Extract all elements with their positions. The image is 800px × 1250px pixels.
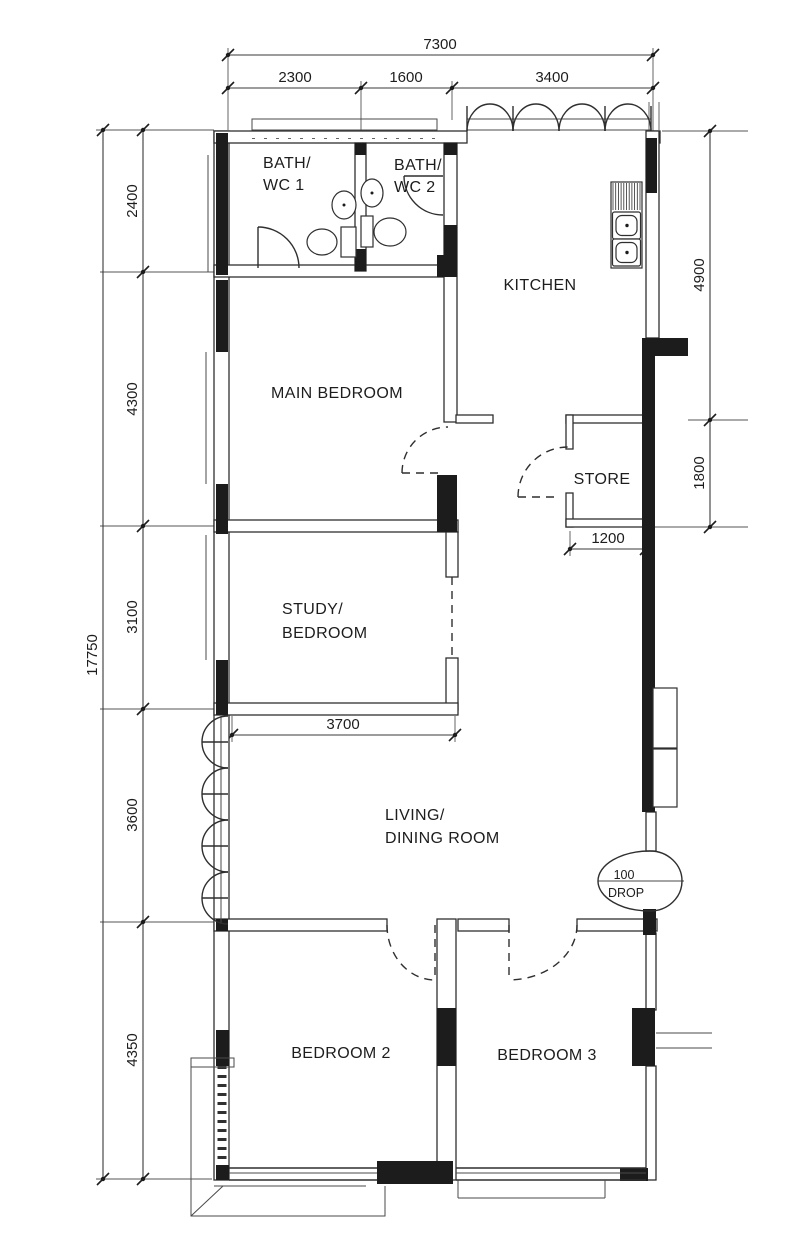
service-shafts: [653, 688, 677, 807]
store-door-dashed: [518, 447, 568, 497]
dim-right-seg1: 4900: [691, 258, 708, 291]
wall-right-lower-3: [646, 1066, 656, 1180]
wall-kitchen-stub: [456, 415, 493, 423]
wall-right-lower-2: [646, 933, 656, 1010]
room-label-store: STORE: [574, 471, 631, 488]
room-label-kitchen: KITCHEN: [503, 277, 576, 294]
bath1-door: [258, 227, 299, 268]
floor-plan-canvas: 7300 2300 1600 3400 17750 2400 4300 3100…: [0, 0, 800, 1250]
room-label-main-bedroom: MAIN BEDROOM: [271, 385, 403, 402]
room-label-study-line1: STUDY/: [282, 601, 343, 618]
dim-left-seg2: 4300: [124, 382, 141, 415]
wall-bath2-kitchen-divider: [444, 143, 457, 422]
wall-bath-bottom: [214, 265, 456, 277]
room-label-bath1-line1: BATH/: [263, 155, 311, 172]
wall-right-lower-1: [646, 812, 656, 851]
dim-top-seg1: 2300: [278, 69, 311, 86]
bath1-fixtures: [307, 191, 356, 257]
dim-store-width: 1200: [591, 530, 624, 547]
room-label-bath2-line2: WC 2: [394, 179, 436, 196]
wall-study-right-upper: [446, 532, 458, 577]
room-label-bath2-line1: BATH/: [394, 157, 442, 174]
annotation-drop-line2: DROP: [608, 886, 644, 900]
dim-left-seg4: 3600: [124, 798, 141, 831]
kitchen-sink-unit: [611, 182, 642, 268]
dim-left-total: 17750: [84, 634, 101, 676]
room-label-bedroom2: BEDROOM 2: [291, 1045, 391, 1062]
windows: [206, 119, 651, 1198]
drop-door: [598, 851, 684, 911]
bedroom2-door-dashed: [387, 925, 435, 980]
room-label-study-line2: BEDROOM: [282, 625, 367, 642]
toilet-bowl: [307, 229, 337, 255]
floor-plan-page: 7300 2300 1600 3400 17750 2400 4300 3100…: [0, 0, 800, 1250]
annotation-drop-line1: 100: [614, 868, 635, 882]
dim-right-seg2: 1800: [691, 456, 708, 489]
wall-store-left-upper: [566, 415, 573, 449]
dim-top-total: 7300: [423, 36, 456, 53]
wall-mainbedroom-bottom: [214, 520, 458, 532]
dim-left-seg1: 2400: [124, 184, 141, 217]
room-label-bath1-line2: WC 1: [263, 177, 305, 194]
wall-store-bottom: [566, 519, 646, 527]
entrance-bifold-doors: [467, 104, 651, 131]
room-label-living-line1: LIVING/: [385, 807, 445, 824]
dim-top-seg2: 1600: [389, 69, 422, 86]
wall-living-bottom-b: [458, 919, 509, 931]
corridor-stub-lines: [656, 1033, 712, 1048]
wall-top: [214, 131, 467, 143]
toilet-tank: [361, 216, 373, 247]
window-top-frame: [252, 119, 437, 130]
dim-left-seg5: 4350: [124, 1033, 141, 1066]
toilet-bowl: [374, 218, 406, 246]
dim-left-seg3: 3100: [124, 600, 141, 633]
wall-living-bottom-a: [214, 919, 387, 931]
wall-study-right-lower: [446, 658, 458, 710]
room-label-bedroom3: BEDROOM 3: [497, 1047, 597, 1064]
dim-top-seg3: 3400: [535, 69, 568, 86]
bedroom3-door-dashed: [509, 925, 577, 980]
room-label-living-line2: DINING ROOM: [385, 830, 500, 847]
wall-study-bottom: [214, 703, 458, 715]
main-bedroom-door-dashed: [402, 427, 448, 473]
wall-store-top: [566, 415, 646, 423]
toilet-tank: [341, 227, 356, 257]
dim-living-width: 3700: [326, 716, 359, 733]
